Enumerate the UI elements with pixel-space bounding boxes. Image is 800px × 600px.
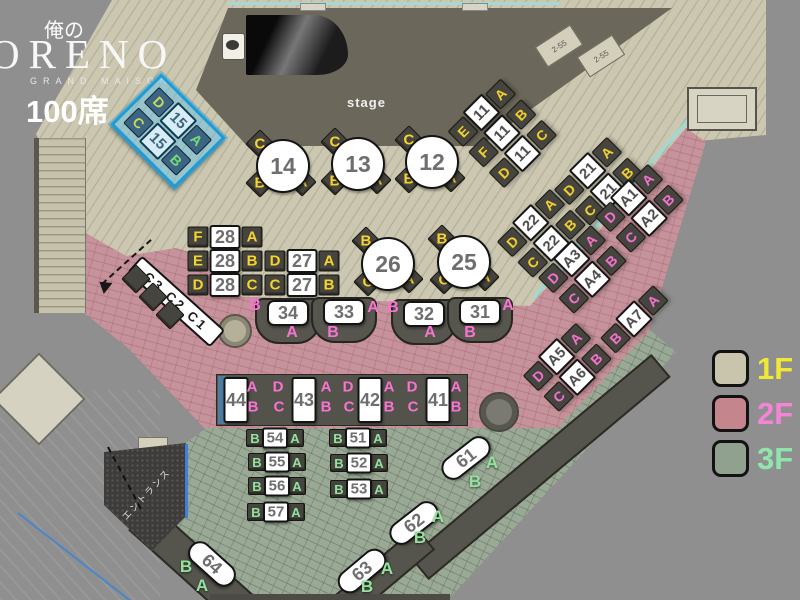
legend-swatch — [712, 395, 749, 432]
table-12[interactable]: 12 — [405, 135, 459, 189]
seat-61-B: B — [469, 472, 481, 492]
seat-33-B: B — [327, 324, 339, 342]
table-13[interactable]: 13 — [331, 137, 385, 191]
seat-28-A: A — [242, 227, 263, 248]
seat-32-A: A — [424, 324, 436, 342]
seat-40s-A: A — [384, 379, 395, 396]
piano-stool-icon — [222, 33, 245, 60]
entrance-edge-line — [185, 444, 188, 518]
table-52[interactable]: 52 — [346, 453, 372, 474]
table-41[interactable]: 41 — [426, 377, 451, 423]
legend-label: 1F — [757, 350, 793, 387]
legend-item-3f: 3F — [712, 440, 793, 477]
legend: 1F2F3F — [712, 350, 793, 477]
entrance-label: エントランス — [119, 465, 173, 522]
legend-item-1f: 1F — [712, 350, 793, 387]
table-34[interactable]: 34 — [267, 300, 309, 326]
seat-63-A: A — [381, 559, 393, 579]
seat-28-D: D — [188, 275, 209, 296]
seat-34-B: B — [249, 297, 261, 315]
seat-56-A: A — [288, 477, 306, 495]
seat-40s-D: D — [407, 379, 418, 396]
seat-40s-B: B — [321, 399, 332, 416]
seat-28-F: F — [188, 227, 209, 248]
seat-57-A: A — [287, 503, 305, 521]
stage-back-wall — [228, 2, 560, 5]
table-31[interactable]: 31 — [459, 299, 501, 325]
table-33[interactable]: 33 — [323, 299, 365, 325]
legend-item-2f: 2F — [712, 395, 793, 432]
table-51[interactable]: 51 — [345, 428, 371, 449]
seat-34-A: A — [286, 324, 298, 342]
seat-28-C: C — [242, 275, 263, 296]
table-25[interactable]: 25 — [437, 235, 491, 289]
seat-count: 100席 — [26, 86, 109, 131]
legend-label: 2F — [757, 395, 793, 432]
seat-27-D: D — [265, 251, 286, 272]
seat-27-B: B — [319, 275, 340, 296]
table-26[interactable]: 26 — [361, 237, 415, 291]
seat-40s-D: D — [273, 379, 284, 396]
seat-40s-A: A — [247, 379, 258, 396]
seat-33-A: A — [367, 299, 379, 317]
seat-40s-B: B — [384, 399, 395, 416]
seat-55-A: A — [288, 453, 306, 471]
table-28[interactable]: 28 — [210, 249, 241, 273]
seat-28-B: B — [242, 251, 263, 272]
seat-52-A: A — [370, 454, 388, 472]
table-14[interactable]: 14 — [256, 139, 310, 193]
seat-54-A: A — [286, 429, 304, 447]
seat-40s-C: C — [274, 399, 285, 416]
seat-62-B: B — [414, 528, 426, 548]
table-55[interactable]: 55 — [264, 452, 290, 473]
seat-63-B: B — [361, 577, 373, 597]
seat-40s-C: C — [408, 399, 419, 416]
logo-name: ORENO — [0, 30, 176, 78]
seat-40s-A: A — [321, 379, 332, 396]
floor-plan: stage 2-55 2-55 エントランス C3 C2 C1 1F2F3F 俺… — [0, 0, 800, 600]
table-54[interactable]: 54 — [262, 428, 288, 449]
legend-swatch — [712, 350, 749, 387]
stage-label: stage — [347, 95, 386, 110]
seat-51-A: A — [369, 429, 387, 447]
bottom-wall — [210, 594, 450, 600]
table-42[interactable]: 42 — [358, 377, 383, 423]
table-57[interactable]: 57 — [263, 502, 289, 523]
seat-62-A: A — [432, 507, 444, 527]
table-28[interactable]: 28 — [210, 225, 241, 249]
seat-40s-B: B — [248, 399, 259, 416]
seat-40s-A: A — [451, 379, 462, 396]
table-27[interactable]: 27 — [287, 273, 318, 297]
legend-label: 3F — [757, 440, 793, 477]
table-56[interactable]: 56 — [264, 476, 290, 497]
table-27[interactable]: 27 — [287, 249, 318, 273]
table-53[interactable]: 53 — [346, 479, 372, 500]
planter-circle — [479, 392, 519, 432]
grand-piano — [246, 15, 348, 75]
table-28[interactable]: 28 — [210, 273, 241, 297]
seat-31-B: B — [464, 324, 476, 342]
stairs — [34, 138, 86, 313]
seat-40s-B: B — [451, 399, 462, 416]
table-43[interactable]: 43 — [292, 377, 317, 423]
seat-28-E: E — [188, 251, 209, 272]
table-44[interactable]: 44 — [224, 377, 249, 423]
seat-27-C: C — [265, 275, 286, 296]
stage-door — [300, 3, 326, 11]
seat-61-A: A — [486, 453, 498, 473]
seat-53-A: A — [370, 480, 388, 498]
seat-40s-C: C — [344, 399, 355, 416]
seat-27-A: A — [319, 251, 340, 272]
seat-31-A: A — [502, 297, 514, 315]
elevator — [687, 87, 757, 131]
legend-swatch — [712, 440, 749, 477]
seat-40s-D: D — [343, 379, 354, 396]
seat-64-A: A — [196, 576, 208, 596]
seat-64-B: B — [180, 557, 192, 577]
stage-door — [462, 3, 488, 11]
seat-32-B: B — [387, 299, 399, 317]
